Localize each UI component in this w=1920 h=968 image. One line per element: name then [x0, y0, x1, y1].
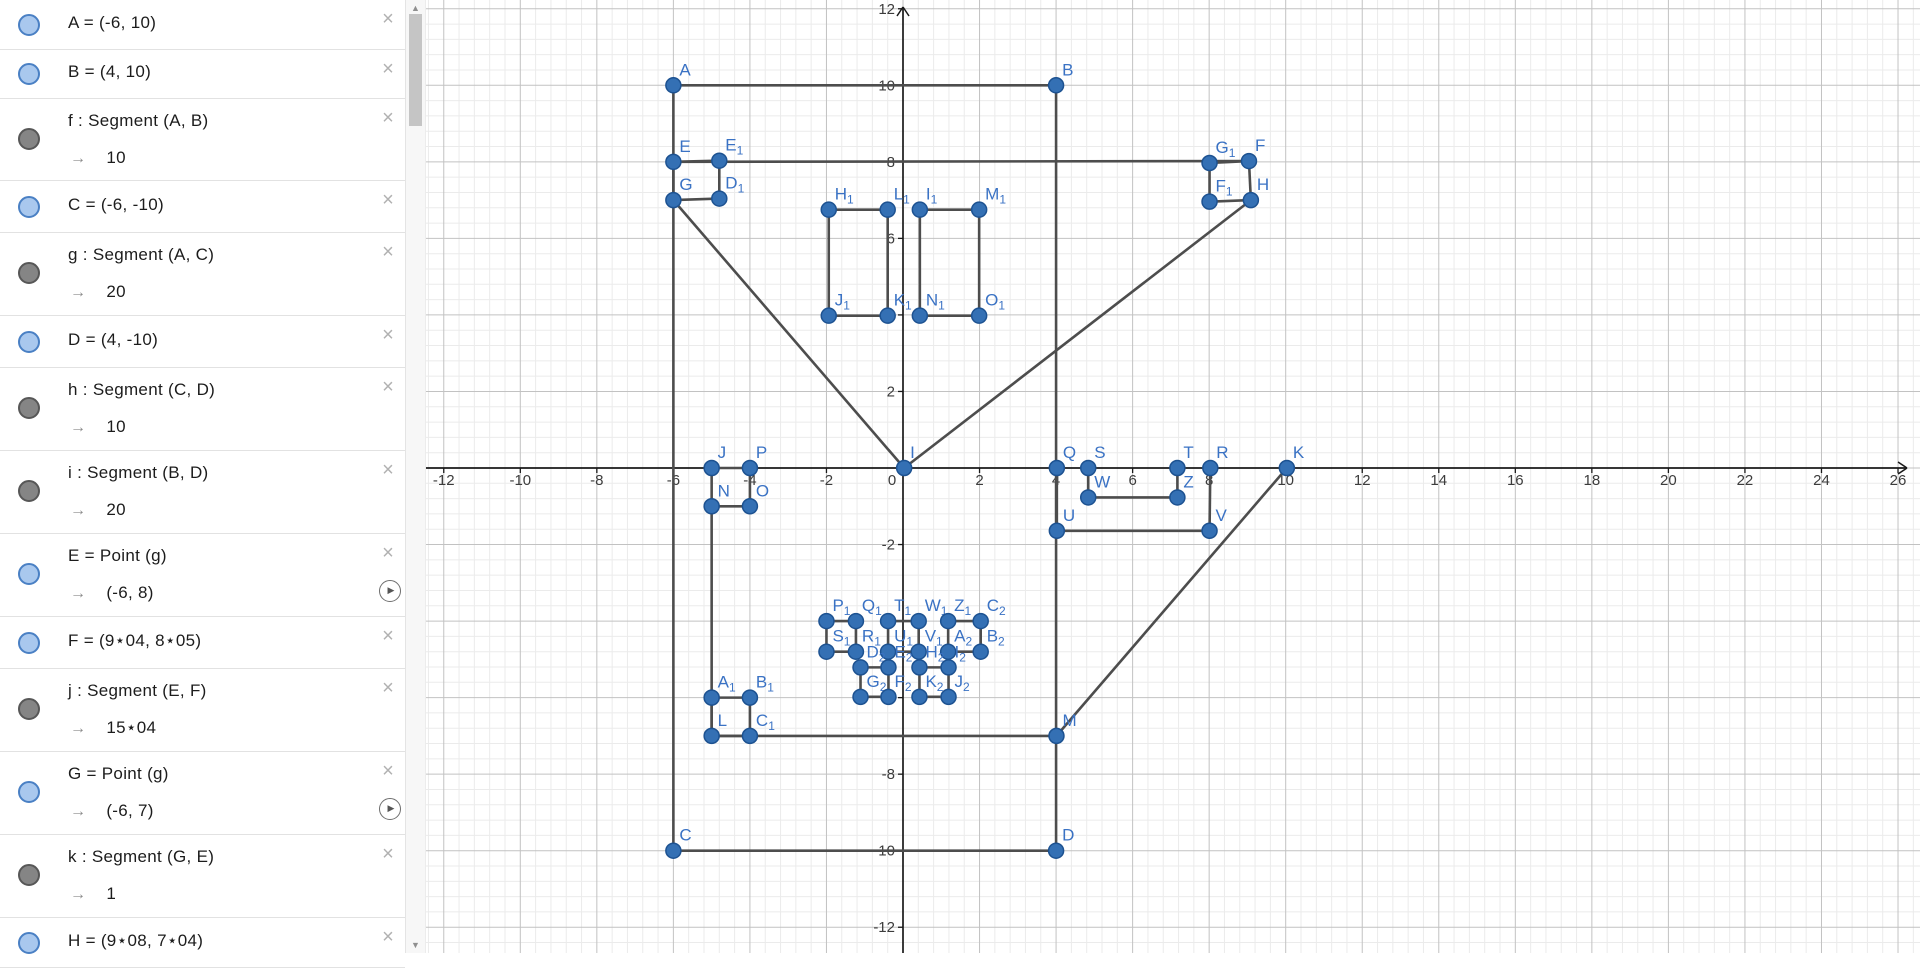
- point-label-M: M: [1062, 711, 1076, 730]
- point-visibility-toggle[interactable]: [18, 781, 40, 803]
- point-label-E: E: [679, 137, 690, 156]
- object-definition: h : Segment (C, D): [68, 380, 215, 400]
- point-B1[interactable]: [742, 690, 757, 705]
- close-row-icon[interactable]: ×: [377, 107, 399, 129]
- output-arrow-icon: →: [70, 150, 106, 167]
- point-label-O1: O1: [985, 291, 1005, 313]
- output-arrow-icon: →: [70, 886, 106, 903]
- point-label-F1: F1: [1216, 177, 1233, 199]
- point-I[interactable]: [897, 461, 912, 476]
- point-label-B: B: [1062, 60, 1073, 79]
- point-M1[interactable]: [972, 202, 987, 217]
- scroll-down-icon[interactable]: ▼: [406, 940, 425, 950]
- y-tick-label: -12: [873, 919, 895, 936]
- algebra-row-A[interactable]: A = (-6, 10)×: [0, 0, 405, 50]
- point-label-H1: H1: [835, 185, 854, 207]
- point-label-P1: P1: [832, 596, 850, 618]
- output-arrow-icon: →: [70, 803, 106, 820]
- point-label-C2: C2: [987, 596, 1006, 618]
- segment-M-K[interactable]: [1056, 468, 1286, 736]
- point-label-J2: J2: [955, 672, 971, 694]
- algebra-row-k[interactable]: k : Segment (G, E)→1×: [0, 835, 405, 918]
- algebra-row-g[interactable]: g : Segment (A, C)→20×: [0, 233, 405, 316]
- point-label-D: D: [1062, 826, 1074, 845]
- point-F1[interactable]: [1202, 194, 1217, 209]
- object-value: →(-6, 8): [70, 583, 154, 603]
- point-R1[interactable]: [848, 644, 863, 659]
- algebra-row-E[interactable]: E = Point (g)→(-6, 8)×▶: [0, 534, 405, 617]
- point-F[interactable]: [1241, 154, 1256, 169]
- segment-E-F[interactable]: [673, 161, 1249, 162]
- point-E1[interactable]: [712, 153, 727, 168]
- animate-play-button[interactable]: ▶: [379, 798, 401, 820]
- object-definition: B = (4, 10): [68, 62, 151, 82]
- point-label-S: S: [1094, 443, 1105, 462]
- close-row-icon[interactable]: ×: [377, 843, 399, 865]
- algebra-row-F[interactable]: F = (9⋆04, 8⋆05)×: [0, 617, 405, 669]
- point-B2[interactable]: [973, 644, 988, 659]
- point-label-Z1: Z1: [954, 596, 971, 618]
- object-definition: A = (-6, 10): [68, 13, 156, 33]
- point-label-L1: L1: [894, 185, 910, 207]
- close-row-icon[interactable]: ×: [377, 8, 399, 30]
- x-tick-label: 12: [1354, 472, 1371, 489]
- object-definition: j : Segment (E, F): [68, 681, 207, 701]
- point-label-A1: A1: [718, 673, 736, 695]
- object-definition: i : Segment (B, D): [68, 463, 209, 483]
- x-tick-label: -10: [509, 472, 531, 489]
- point-visibility-toggle[interactable]: [18, 196, 40, 218]
- close-row-icon[interactable]: ×: [377, 241, 399, 263]
- point-visibility-toggle[interactable]: [18, 932, 40, 954]
- point-label-I1: I1: [926, 185, 938, 207]
- close-row-icon[interactable]: ×: [377, 926, 399, 948]
- point-L1[interactable]: [880, 202, 895, 217]
- point-label-P: P: [756, 443, 767, 462]
- scroll-up-icon[interactable]: ▲: [406, 3, 425, 13]
- output-arrow-icon: →: [70, 284, 106, 301]
- algebra-row-B[interactable]: B = (4, 10)×: [0, 50, 405, 99]
- x-tick-label: 26: [1890, 472, 1907, 489]
- algebra-row-C[interactable]: C = (-6, -10)×: [0, 181, 405, 233]
- segment-G-I[interactable]: [673, 200, 904, 468]
- point-label-M1: M1: [985, 185, 1006, 207]
- point-label-S1: S1: [832, 627, 850, 649]
- close-row-icon[interactable]: ×: [377, 542, 399, 564]
- graph-canvas[interactable]: -12-10-8-6-4-202468101214161820222426121…: [426, 0, 1920, 953]
- segment-visibility-toggle[interactable]: [18, 698, 40, 720]
- close-row-icon[interactable]: ×: [377, 376, 399, 398]
- point-V[interactable]: [1202, 523, 1217, 538]
- x-tick-label: 2: [975, 472, 983, 489]
- close-row-icon[interactable]: ×: [377, 625, 399, 647]
- point-I1[interactable]: [912, 202, 927, 217]
- algebra-row-D[interactable]: D = (4, -10)×: [0, 316, 405, 368]
- object-value: →(-6, 7): [70, 801, 154, 821]
- output-arrow-icon: →: [70, 419, 106, 436]
- point-G[interactable]: [666, 193, 681, 208]
- x-tick-label: 20: [1660, 472, 1677, 489]
- point-visibility-toggle[interactable]: [18, 14, 40, 36]
- object-value: →10: [70, 417, 126, 437]
- point-label-V: V: [1216, 506, 1228, 525]
- close-row-icon[interactable]: ×: [377, 324, 399, 346]
- close-row-icon[interactable]: ×: [377, 459, 399, 481]
- point-D[interactable]: [1049, 843, 1064, 858]
- x-tick-label: 18: [1584, 472, 1601, 489]
- close-row-icon[interactable]: ×: [377, 189, 399, 211]
- object-definition: f : Segment (A, B): [68, 111, 209, 131]
- segment-visibility-toggle[interactable]: [18, 128, 40, 150]
- point-label-F2: F2: [894, 672, 911, 694]
- algebra-row-G[interactable]: G = Point (g)→(-6, 7)×▶: [0, 752, 405, 835]
- point-H[interactable]: [1243, 193, 1258, 208]
- y-tick-label: -2: [882, 537, 895, 554]
- point-label-E1: E1: [725, 136, 743, 158]
- x-axis-arrow: [1898, 462, 1907, 468]
- algebra-row-H[interactable]: H = (9⋆08, 7⋆04)×: [0, 918, 405, 968]
- point-N[interactable]: [704, 499, 719, 514]
- point-label-A: A: [679, 60, 691, 79]
- point-S1[interactable]: [819, 644, 834, 659]
- segment-I-H[interactable]: [904, 200, 1251, 468]
- close-row-icon[interactable]: ×: [377, 58, 399, 80]
- point-B[interactable]: [1049, 78, 1064, 93]
- segment-visibility-toggle[interactable]: [18, 864, 40, 886]
- x-tick-label: 6: [1128, 472, 1136, 489]
- output-arrow-icon: →: [70, 720, 106, 737]
- algebra-panel: A = (-6, 10)×B = (4, 10)×f : Segment (A,…: [0, 0, 425, 953]
- sidebar-scrollbar[interactable]: ▲ ▼: [405, 0, 425, 953]
- point-C1[interactable]: [742, 728, 757, 743]
- geogebra-app: A = (-6, 10)×B = (4, 10)×f : Segment (A,…: [0, 0, 1920, 953]
- x-tick-label: 14: [1430, 472, 1447, 489]
- point-label-C: C: [679, 826, 691, 845]
- point-label-F: F: [1255, 136, 1265, 155]
- object-definition: H = (9⋆08, 7⋆04): [68, 931, 203, 951]
- output-arrow-icon: →: [70, 585, 106, 602]
- point-label-U: U: [1063, 506, 1075, 525]
- scrollbar-thumb[interactable]: [409, 14, 422, 126]
- point-M[interactable]: [1049, 728, 1064, 743]
- point-H1[interactable]: [821, 202, 836, 217]
- point-K2[interactable]: [912, 689, 927, 704]
- point-label-T: T: [1183, 443, 1193, 462]
- point-label-Z: Z: [1183, 472, 1193, 491]
- object-value: →20: [70, 282, 126, 302]
- point-L[interactable]: [704, 728, 719, 743]
- close-row-icon[interactable]: ×: [377, 677, 399, 699]
- point-label-J: J: [718, 443, 727, 462]
- algebra-row-h[interactable]: h : Segment (C, D)→10×: [0, 368, 405, 451]
- point-label-Q1: Q1: [862, 596, 882, 618]
- point-E[interactable]: [666, 154, 681, 169]
- point-label-K: K: [1293, 443, 1305, 462]
- output-arrow-icon: →: [70, 502, 106, 519]
- point-label-T1: T1: [894, 596, 911, 618]
- point-N1[interactable]: [912, 308, 927, 323]
- point-label-W: W: [1094, 472, 1110, 491]
- segment-visibility-toggle[interactable]: [18, 397, 40, 419]
- object-definition: g : Segment (A, C): [68, 245, 214, 265]
- point-O1[interactable]: [972, 308, 987, 323]
- object-value: →1: [70, 884, 116, 904]
- point-label-L: L: [718, 711, 727, 730]
- y-tick-label: -8: [882, 766, 895, 783]
- point-G2[interactable]: [853, 689, 868, 704]
- x-tick-label: -2: [820, 472, 833, 489]
- point-F2[interactable]: [881, 689, 896, 704]
- point-label-Q: Q: [1063, 443, 1076, 462]
- segment-V-R[interactable]: [1210, 468, 1211, 531]
- x-tick-label: 16: [1507, 472, 1524, 489]
- point-label-G1: G1: [1216, 138, 1236, 160]
- point-label-R: R: [1216, 443, 1228, 462]
- object-definition: D = (4, -10): [68, 330, 158, 350]
- point-label-K2: K2: [925, 672, 943, 694]
- object-definition: C = (-6, -10): [68, 195, 164, 215]
- point-label-G: G: [679, 175, 692, 194]
- object-definition: k : Segment (G, E): [68, 847, 214, 867]
- point-W[interactable]: [1081, 490, 1096, 505]
- point-K1[interactable]: [880, 308, 895, 323]
- x-tick-label: -8: [590, 472, 603, 489]
- point-A[interactable]: [666, 78, 681, 93]
- object-value: →10: [70, 148, 126, 168]
- segment-visibility-toggle[interactable]: [18, 480, 40, 502]
- point-label-K1: K1: [894, 291, 912, 313]
- point-visibility-toggle[interactable]: [18, 331, 40, 353]
- algebra-row-i[interactable]: i : Segment (B, D)→20×: [0, 451, 405, 534]
- point-J1[interactable]: [821, 308, 836, 323]
- point-U[interactable]: [1049, 523, 1064, 538]
- object-value: →15⋆04: [70, 718, 156, 738]
- point-J[interactable]: [704, 461, 719, 476]
- point-label-N: N: [718, 481, 730, 500]
- point-Z[interactable]: [1170, 490, 1185, 505]
- point-label-O: O: [756, 481, 769, 500]
- point-R[interactable]: [1203, 461, 1218, 476]
- point-visibility-toggle[interactable]: [18, 563, 40, 585]
- point-label-H: H: [1257, 175, 1269, 194]
- point-D1[interactable]: [712, 191, 727, 206]
- object-definition: F = (9⋆04, 8⋆05): [68, 631, 201, 651]
- x-tick-label: -12: [433, 472, 455, 489]
- point-label-B1: B1: [756, 673, 774, 695]
- point-P[interactable]: [742, 461, 757, 476]
- point-Q[interactable]: [1049, 461, 1064, 476]
- point-label-C1: C1: [756, 711, 775, 733]
- point-label-B2: B2: [987, 627, 1005, 649]
- point-C[interactable]: [666, 843, 681, 858]
- segment-visibility-toggle[interactable]: [18, 262, 40, 284]
- x-tick-label: 22: [1737, 472, 1754, 489]
- point-O[interactable]: [742, 499, 757, 514]
- point-visibility-toggle[interactable]: [18, 63, 40, 85]
- algebra-row-f[interactable]: f : Segment (A, B)→10×: [0, 99, 405, 181]
- point-visibility-toggle[interactable]: [18, 632, 40, 654]
- animate-play-button[interactable]: ▶: [379, 580, 401, 602]
- point-K[interactable]: [1279, 461, 1294, 476]
- y-tick-label: 12: [878, 1, 895, 18]
- object-value: →20: [70, 500, 126, 520]
- x-tick-label: 24: [1813, 472, 1830, 489]
- point-label-I: I: [910, 443, 915, 462]
- point-V1[interactable]: [911, 644, 926, 659]
- algebra-row-j[interactable]: j : Segment (E, F)→15⋆04×: [0, 669, 405, 752]
- point-label-N1: N1: [926, 291, 945, 313]
- object-definition: G = Point (g): [68, 764, 169, 784]
- point-A1[interactable]: [704, 690, 719, 705]
- y-tick-label: 2: [887, 383, 895, 400]
- graphics-view[interactable]: -12-10-8-6-4-202468101214161820222426121…: [425, 0, 1920, 953]
- point-J2[interactable]: [941, 689, 956, 704]
- point-G1[interactable]: [1202, 155, 1217, 170]
- close-row-icon[interactable]: ×: [377, 760, 399, 782]
- algebra-rows: A = (-6, 10)×B = (4, 10)×f : Segment (A,…: [0, 0, 405, 968]
- point-label-J1: J1: [835, 291, 851, 313]
- x-tick-label: 0: [888, 472, 896, 489]
- object-definition: E = Point (g): [68, 546, 167, 566]
